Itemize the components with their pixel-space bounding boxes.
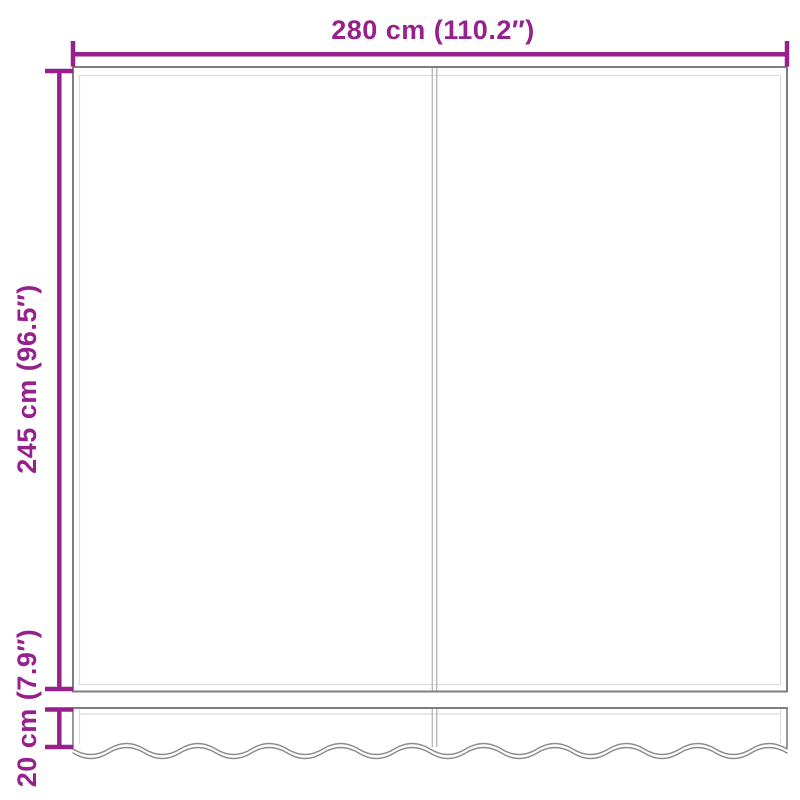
valance-dimension-line bbox=[45, 710, 73, 748]
height-dimension-label: 245 cm (96.5″) bbox=[12, 284, 42, 474]
valance-dimension-label: 20 cm (7.9″) bbox=[12, 629, 42, 788]
product-dimension-image: 280 cm (110.2″) 245 cm (96.5″) 20 cm (7.… bbox=[0, 0, 800, 800]
awning-fabric-dimension-diagram: 280 cm (110.2″) 245 cm (96.5″) 20 cm (7.… bbox=[0, 0, 800, 800]
height-dimension-line bbox=[45, 71, 73, 689]
width-dimension-label: 280 cm (110.2″) bbox=[331, 15, 535, 45]
fabric-panel-outline bbox=[73, 67, 787, 692]
valance-center-seam bbox=[432, 709, 436, 747]
valance-wave-edge bbox=[73, 744, 787, 759]
valance-inner-seam bbox=[80, 709, 781, 744]
